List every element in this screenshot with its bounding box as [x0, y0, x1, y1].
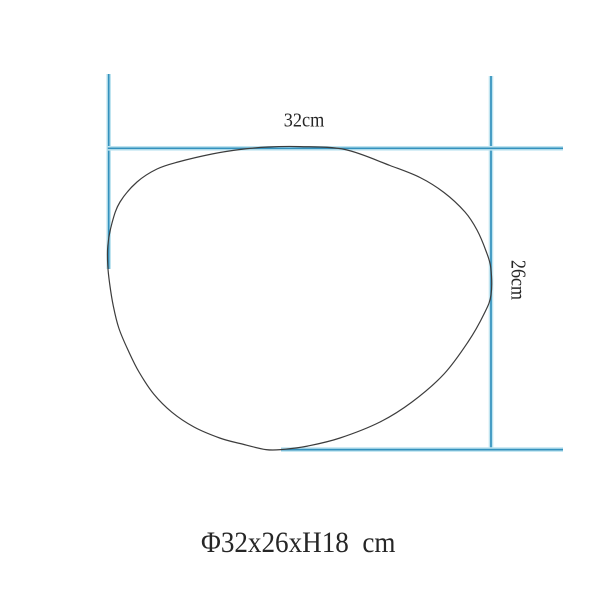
svg-text:26cm: 26cm — [507, 260, 531, 300]
svg-text:32cm: 32cm — [284, 110, 325, 132]
svg-text:Φ32x26xH18 cm: Φ32x26xH18 cm — [201, 527, 396, 559]
